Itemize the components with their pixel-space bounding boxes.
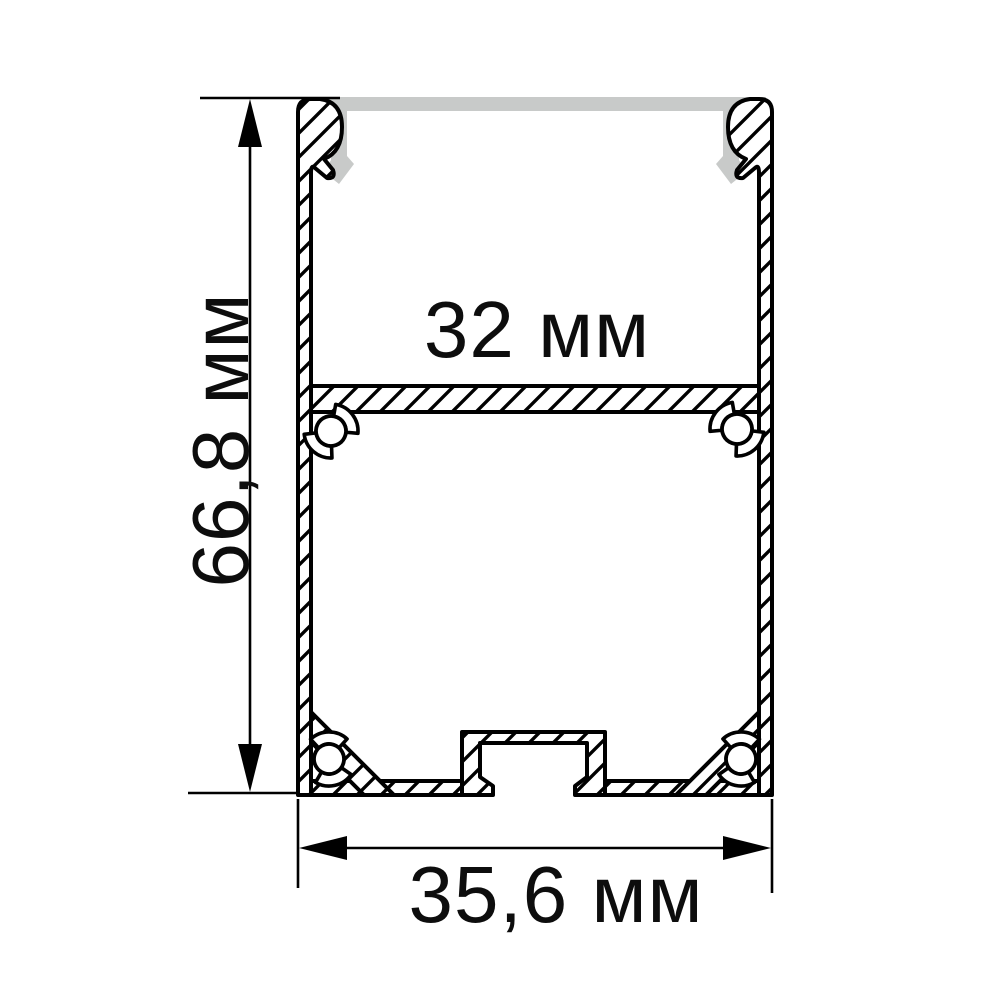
diffuser-top-plate: [305, 97, 766, 111]
diffuser-cover: [305, 97, 766, 184]
technical-drawing-page: 66,8 мм 32 мм 35,6 мм: [0, 0, 1000, 1000]
dimension-label-outer-width: 35,6 мм: [409, 850, 704, 939]
profile-cross-section-drawing: 66,8 мм 32 мм 35,6 мм: [0, 0, 1000, 1000]
arrowhead-left: [299, 836, 347, 860]
horizontal-dimension: 35,6 мм: [298, 799, 772, 939]
arrowhead-down: [238, 744, 262, 792]
mounting-channel: [462, 732, 605, 795]
arrowhead-right: [723, 836, 771, 860]
middle-shelf: [311, 386, 759, 412]
dimension-label-height: 66,8 мм: [176, 293, 265, 588]
arrowhead-up: [238, 99, 262, 147]
dimension-label-inner-width: 32 мм: [424, 285, 650, 374]
profile-body: [296, 99, 772, 795]
